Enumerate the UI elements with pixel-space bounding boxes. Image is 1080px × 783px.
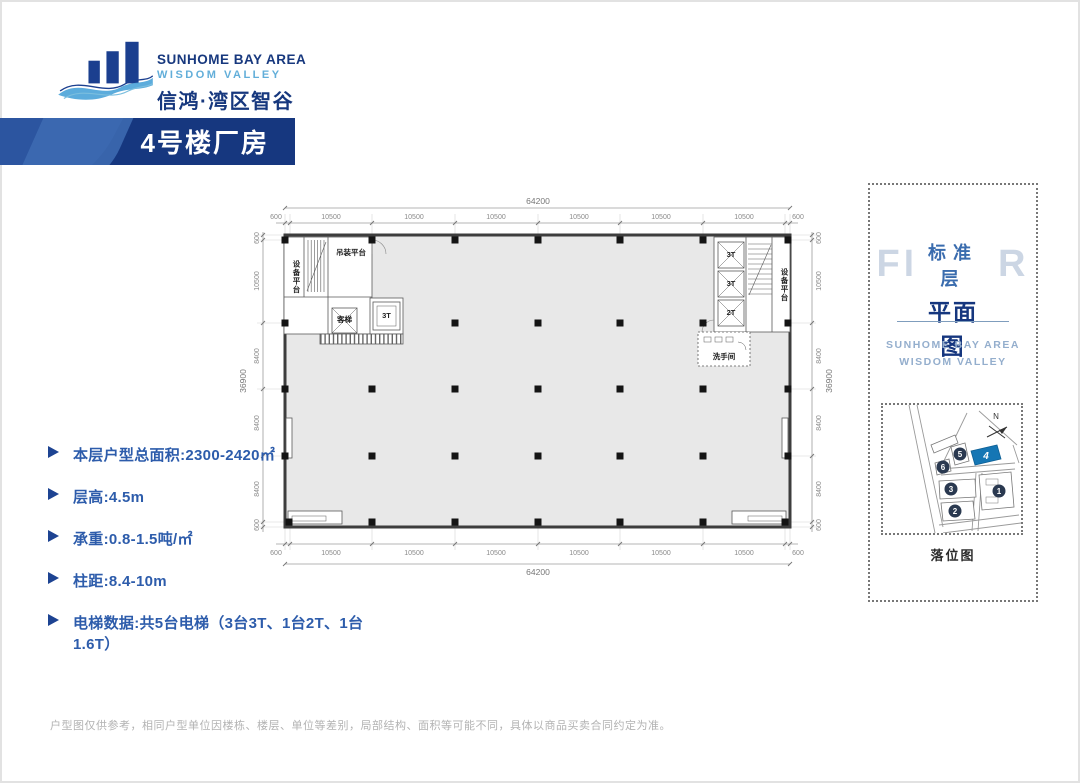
panel-brand: SUNHOME BAY AREA WISDOM VALLEY: [870, 337, 1036, 371]
room-label-elevator-3t-b: 3T: [718, 280, 744, 288]
site-map-drawing: 4 1 2 3 5 6 N: [883, 405, 1021, 533]
room-label-equipment-platform-right: 设备平台: [775, 256, 788, 314]
dim-label: 8400: [254, 415, 261, 431]
site-map-number-5: 5: [958, 450, 963, 459]
dim-total-width-bottom: 64200: [526, 567, 550, 577]
building-banner: 4号楼厂房: [0, 118, 295, 165]
north-compass-icon: N: [987, 412, 1007, 438]
dim-label: 10500: [404, 214, 424, 221]
dim-label: 8400: [816, 481, 823, 497]
dim-label: 8400: [816, 348, 823, 364]
dim-label: 10500: [569, 550, 589, 557]
room-label-equipment-platform-left: 设备平台: [287, 250, 300, 304]
room-label-elevator-3t-a: 3T: [718, 251, 744, 259]
logo: SUNHOME BAY AREA WISDOM VALLEY 信鸿·湾区智谷: [58, 38, 306, 114]
dim-label: 8400: [254, 348, 261, 364]
dim-label: 10500: [734, 550, 754, 557]
site-map-caption: 落位图: [870, 545, 1036, 564]
spec-item-load: 承重:0.8-1.5吨/㎡: [48, 528, 378, 549]
dim-label: 10500: [651, 550, 671, 557]
triangle-bullet-icon: [48, 614, 59, 626]
page: SUNHOME BAY AREA WISDOM VALLEY 信鸿·湾区智谷 4…: [0, 0, 1080, 783]
dim-label: 600: [792, 214, 804, 221]
site-map-number-6: 6: [941, 463, 946, 472]
dim-label: 10500: [486, 214, 506, 221]
site-map-number-1: 1: [997, 487, 1002, 496]
banner-title: 4号楼厂房: [141, 123, 295, 160]
divider: [897, 321, 1009, 322]
side-panel: FLOOR 标准层 平面图 SUNHOME BAY AREA WISDOM VA…: [868, 183, 1038, 602]
spec-item-elevators: 电梯数据:共5台电梯（3台3T、1台2T、1台1.6T）: [48, 612, 378, 654]
triangle-bullet-icon: [48, 446, 59, 458]
site-map: 4 1 2 3 5 6 N: [881, 403, 1023, 535]
spec-item-column-spacing: 柱距:8.4-10m: [48, 570, 378, 591]
room-label-restroom: 洗手间: [698, 353, 750, 361]
logo-bars-wave-icon: [58, 38, 153, 108]
spec-text: 本层户型总面积:2300-2420㎡: [73, 444, 275, 465]
spec-text: 柱距:8.4-10m: [73, 570, 167, 591]
dim-label: 10500: [734, 214, 754, 221]
dim-total-height-right: 36900: [824, 369, 834, 393]
triangle-bullet-icon: [48, 488, 59, 500]
dim-label: 10500: [651, 214, 671, 221]
site-map-number-4: 4: [982, 451, 989, 462]
panel-brand-line1: SUNHOME BAY AREA: [870, 337, 1036, 354]
disclaimer-text: 户型图仅供参考，相同户型单位因楼栋、楼层、单位等差别，局部结构、面积等可能不同，…: [50, 717, 950, 733]
triangle-bullet-icon: [48, 530, 59, 542]
dim-label: 10500: [816, 271, 823, 291]
room-label-hoisting-platform: 吊装平台: [328, 249, 374, 257]
room-label-elevator-2t: 2T: [718, 309, 744, 317]
logo-name-en: SUNHOME BAY AREA: [157, 52, 306, 67]
dim-total-width-top: 64200: [526, 196, 550, 206]
panel-title-line1: 标准层: [920, 239, 987, 291]
site-map-number-2: 2: [953, 507, 958, 516]
site-map-buildings: [931, 435, 1014, 521]
triangle-bullet-icon: [48, 572, 59, 584]
logo-name-sub: WISDOM VALLEY: [157, 69, 306, 81]
spec-item-floor-height: 层高:4.5m: [48, 486, 378, 507]
panel-brand-line2: WISDOM VALLEY: [870, 354, 1036, 371]
spec-text: 承重:0.8-1.5吨/㎡: [73, 528, 193, 549]
dim-label: 600: [816, 232, 823, 244]
dim-label: 600: [270, 214, 282, 221]
north-label: N: [993, 412, 999, 421]
spec-list: 本层户型总面积:2300-2420㎡ 层高:4.5m 承重:0.8-1.5吨/㎡…: [48, 444, 378, 675]
dim-label: 10500: [569, 214, 589, 221]
dim-label: 600: [792, 550, 804, 557]
logo-text: SUNHOME BAY AREA WISDOM VALLEY 信鸿·湾区智谷: [157, 38, 306, 114]
spec-text: 层高:4.5m: [73, 486, 144, 507]
dim-label: 10500: [404, 550, 424, 557]
spec-text: 电梯数据:共5台电梯（3台3T、1台2T、1台1.6T）: [73, 612, 378, 654]
dim-label: 600: [816, 519, 823, 531]
dim-label: 8400: [816, 415, 823, 431]
site-map-number-3: 3: [949, 485, 954, 494]
room-label-passenger-elevator: 客梯: [332, 316, 357, 324]
dim-label: 10500: [486, 550, 506, 557]
dim-label: 10500: [254, 271, 261, 291]
logo-name-cn: 信鸿·湾区智谷: [157, 85, 306, 114]
panel-title-block: FLOOR 标准层 平面图: [870, 237, 1036, 301]
dim-label: 10500: [321, 214, 341, 221]
room-label-elevator-3t-left: 3T: [373, 312, 400, 320]
spec-item-area: 本层户型总面积:2300-2420㎡: [48, 444, 378, 465]
dim-total-height-left: 36900: [238, 369, 248, 393]
dim-label: 600: [254, 232, 261, 244]
